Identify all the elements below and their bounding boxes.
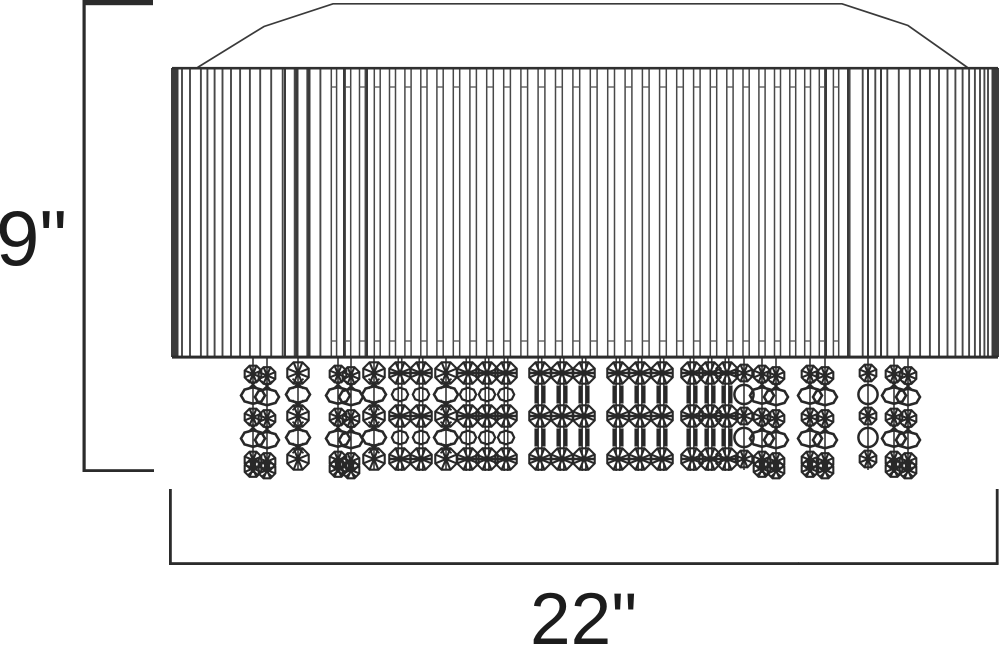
svg-text:9": 9" bbox=[0, 194, 67, 282]
svg-text:22": 22" bbox=[530, 579, 637, 660]
